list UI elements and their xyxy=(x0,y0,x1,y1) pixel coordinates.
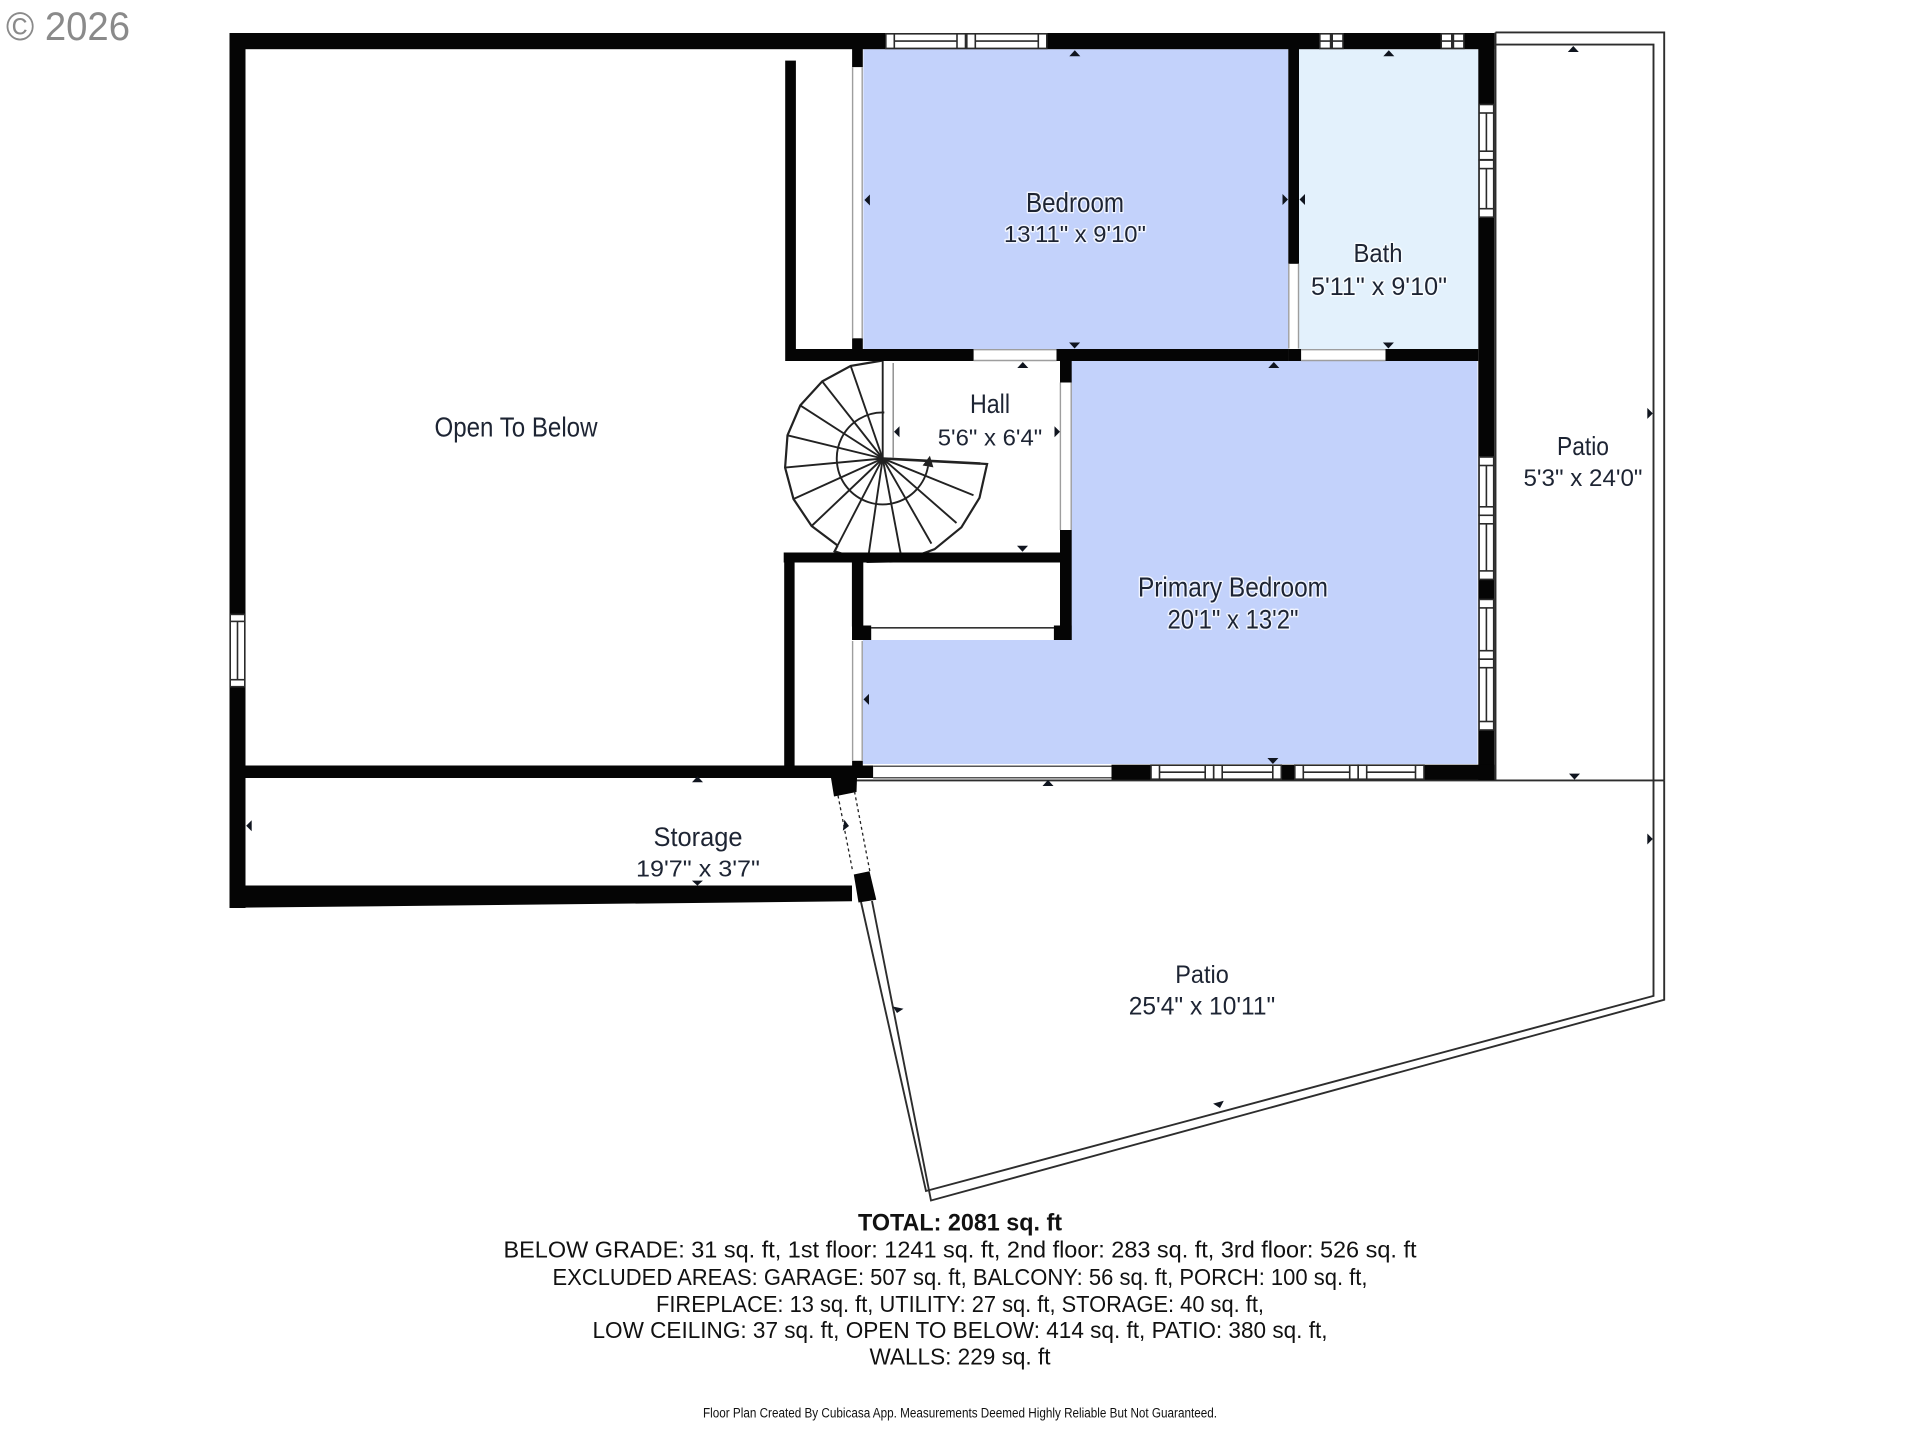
svg-text:© 2026: © 2026 xyxy=(6,5,130,49)
svg-text:FIREPLACE: 13 sq. ft, UTILITY:: FIREPLACE: 13 sq. ft, UTILITY: 27 sq. ft… xyxy=(656,1291,1264,1317)
svg-text:Open To Below: Open To Below xyxy=(435,412,598,443)
svg-text:EXCLUDED AREAS: GARAGE: 507 sq: EXCLUDED AREAS: GARAGE: 507 sq. ft, BALC… xyxy=(553,1264,1368,1290)
svg-text:WALLS: 229 sq. ft: WALLS: 229 sq. ft xyxy=(870,1343,1051,1369)
svg-text:Floor Plan Created By Cubicasa: Floor Plan Created By Cubicasa App. Meas… xyxy=(703,1406,1217,1421)
svg-text:20'1" x 13'2": 20'1" x 13'2" xyxy=(1168,605,1299,635)
svg-text:13'11" x 9'10": 13'11" x 9'10" xyxy=(1004,221,1146,247)
svg-text:BELOW GRADE: 31 sq. ft, 1st fl: BELOW GRADE: 31 sq. ft, 1st floor: 1241 … xyxy=(504,1237,1417,1263)
svg-text:Primary Bedroom: Primary Bedroom xyxy=(1138,572,1328,603)
svg-text:5'6" x 6'4": 5'6" x 6'4" xyxy=(938,425,1043,451)
svg-text:Bedroom: Bedroom xyxy=(1026,187,1124,218)
svg-text:Patio: Patio xyxy=(1557,431,1609,461)
svg-text:Hall: Hall xyxy=(970,389,1010,419)
svg-text:Storage: Storage xyxy=(654,822,743,852)
svg-text:Bath: Bath xyxy=(1354,238,1403,268)
svg-text:5'11" x 9'10": 5'11" x 9'10" xyxy=(1311,273,1447,301)
svg-text:5'3" x 24'0": 5'3" x 24'0" xyxy=(1524,465,1643,492)
svg-text:LOW CEILING: 37 sq. ft, OPEN T: LOW CEILING: 37 sq. ft, OPEN TO BELOW: 4… xyxy=(593,1317,1328,1343)
svg-text:19'7" x 3'7": 19'7" x 3'7" xyxy=(636,856,760,882)
svg-text:25'4" x 10'11": 25'4" x 10'11" xyxy=(1129,993,1276,1021)
svg-text:TOTAL: 2081 sq. ft: TOTAL: 2081 sq. ft xyxy=(858,1210,1062,1237)
svg-text:Patio: Patio xyxy=(1175,961,1229,989)
